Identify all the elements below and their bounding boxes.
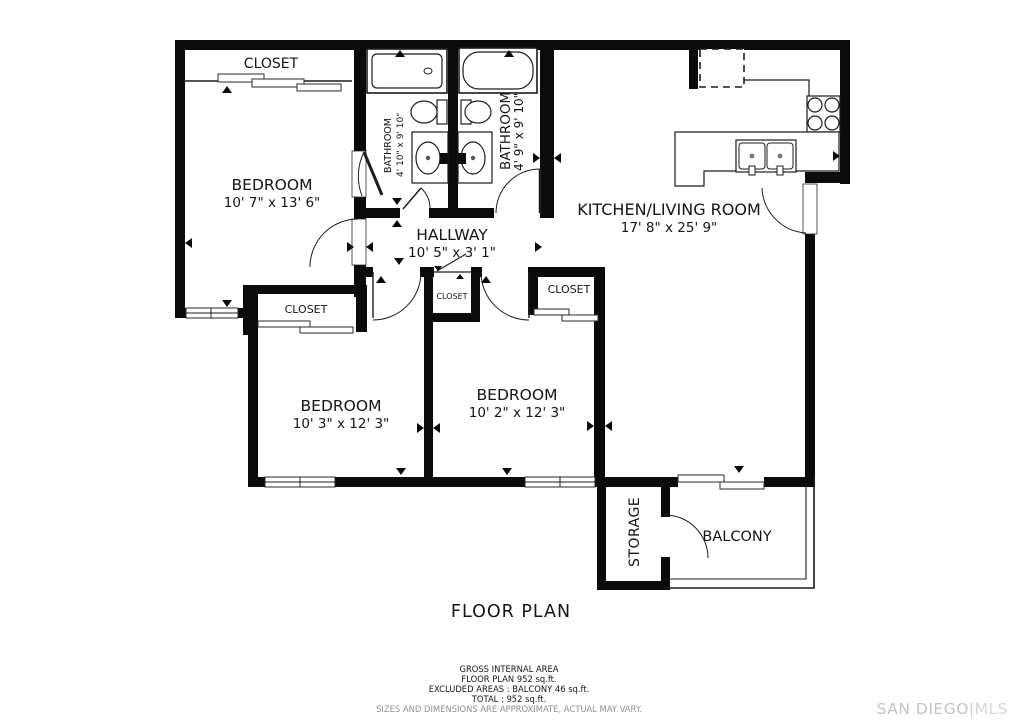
watermark-brand: SAN DIEGO — [877, 700, 969, 718]
label-bedroom2: BEDROOM — [301, 397, 382, 415]
refrigerator — [700, 49, 744, 87]
marker-up-closet1-slider — [222, 86, 232, 93]
door-jamb-bathroom1-bedroom — [352, 151, 366, 197]
dims-bathroom1: 4' 10" x 9' 10" — [396, 113, 406, 177]
marker-right-hall-end — [535, 242, 542, 252]
dims-kitchen-living: 17' 8" x 25' 9" — [621, 220, 718, 236]
door-arc-bathroom1-hall — [421, 188, 430, 209]
wall-kitchen-step — [805, 172, 850, 183]
label-bedroom1: BEDROOM — [232, 176, 313, 194]
stove — [807, 96, 840, 132]
footer-total-area: TOTAL : 952 sq.ft. — [471, 694, 546, 704]
marker-right-bed3-divider — [587, 421, 594, 431]
marker-left-hall-left-b — [366, 242, 373, 252]
door-arc-entry — [762, 188, 806, 233]
floor-plan-drawing: CLOSET BEDROOM 10' 7" x 13' 6" BATHROOM … — [0, 0, 1024, 724]
window-bedroom1 — [186, 308, 238, 318]
label-bathroom1: BATHROOM — [383, 118, 394, 173]
dims-bedroom2: 10' 3" x 12' 3" — [293, 416, 390, 432]
marker-left-bed23-divider — [433, 423, 440, 433]
wall-fridge-nook — [689, 40, 698, 89]
wall-bedroom2-left — [248, 285, 258, 487]
door-leaf-bathroom1-hall — [403, 188, 421, 209]
footer-gross-area: GROSS INTERNAL AREA — [459, 664, 558, 674]
toilet-bathroom1 — [411, 100, 447, 124]
wall-kitchen-right-upper — [840, 40, 850, 184]
marker-down-bath1-door — [392, 198, 402, 205]
label-balcony: BALCONY — [702, 529, 771, 545]
wall-hallway-bottom-d — [528, 267, 604, 277]
wall-storage-left — [597, 487, 606, 590]
wall-bedroom2-bedroom3-divider — [424, 320, 433, 487]
wall-bathroom-divider — [448, 40, 458, 210]
door-arc-bathroom2 — [496, 169, 540, 213]
watermark-suffix: MLS — [975, 700, 1008, 718]
wall-hallway-bottom-a — [354, 267, 373, 277]
watermark: SAN DIEGO|MLS — [877, 700, 1008, 718]
marker-down-bedroom2-door — [394, 258, 404, 265]
wall-closet-bedroom2-top — [243, 285, 367, 294]
sliding-door-closet-bedroom1 — [183, 74, 352, 91]
wall-bedroom1-bathroom1-upper — [354, 40, 366, 151]
dims-bedroom1: 10' 7" x 13' 6" — [224, 195, 321, 211]
wall-storage-bottom — [597, 581, 670, 590]
kitchen-sink — [736, 140, 796, 175]
floor-plan-page: CLOSET BEDROOM 10' 7" x 13' 6" BATHROOM … — [0, 0, 1024, 724]
dims-bedroom3: 10' 2" x 12' 3" — [469, 405, 566, 421]
marker-down-bedroom3-window — [502, 468, 512, 475]
door-arc-bedroom1 — [310, 219, 358, 267]
wall-closet-bedroom2-right — [356, 285, 367, 332]
label-closet-bedroom3: CLOSET — [548, 283, 591, 296]
shower — [367, 49, 447, 93]
marker-up-bedroom2-door — [376, 276, 386, 283]
label-closet-hallway: CLOSET — [436, 292, 467, 301]
marker-right-bath2-wall — [533, 153, 540, 163]
toilet-bathroom2 — [461, 100, 491, 124]
marker-left-bedroom1-wall — [185, 238, 192, 248]
wall-storage-right-upper — [661, 477, 670, 517]
label-storage: STORAGE — [627, 497, 643, 567]
wall-bathroom2-kitchen — [540, 40, 554, 218]
label-closet-bedroom2: CLOSET — [285, 303, 328, 316]
window-bedroom2 — [265, 477, 335, 487]
dims-bathroom2: 4' 9" x 9' 10" — [512, 93, 526, 171]
sliding-door-closet-bedroom3 — [534, 309, 598, 321]
sliding-door-balcony — [678, 475, 764, 489]
marker-left-bath2-wall — [554, 153, 561, 163]
label-bedroom3: BEDROOM — [477, 386, 558, 404]
sliding-door-closet-bedroom2 — [258, 321, 353, 333]
wall-bedroom3-kitchen-divider — [594, 267, 605, 487]
label-closet-bedroom1: CLOSET — [244, 56, 299, 72]
wall-kitchen-right-lower — [805, 234, 815, 487]
counter-upper — [744, 80, 809, 96]
label-kitchen-living: KITCHEN/LIVING ROOM — [577, 200, 761, 219]
marker-down-balcony-door — [734, 466, 744, 473]
marker-up-hall-closet — [456, 274, 464, 279]
marker-up-bath1-door — [392, 220, 402, 227]
page-title: FLOOR PLAN — [451, 602, 571, 622]
door-jamb-entry — [803, 184, 817, 234]
door-jamb-bedroom1 — [352, 219, 366, 265]
window-bedroom3 — [525, 477, 595, 487]
door-leaf-bathroom1-bedroom — [364, 152, 382, 195]
marker-down-bedroom2-window — [396, 468, 406, 475]
dims-hallway: 10' 5" x 3' 1" — [408, 245, 496, 261]
footer-floor-plan-area: FLOOR PLAN 952 sq.ft. — [461, 674, 556, 684]
wall-bathroom1-bottom-a — [360, 208, 400, 218]
footer-disclaimer: SIZES AND DIMENSIONS ARE APPROXIMATE, AC… — [376, 704, 642, 714]
marker-up-bedroom3-door — [481, 276, 491, 283]
fixtures — [367, 48, 840, 186]
footer-excluded-areas: EXCLUDED AREAS : BALCONY 46 sq.ft. — [429, 684, 590, 694]
marker-right-bed23-divider — [417, 423, 424, 433]
wall-bathroom2-bottom — [452, 208, 494, 218]
label-hallway: HALLWAY — [416, 226, 488, 244]
labels: CLOSET BEDROOM 10' 7" x 13' 6" BATHROOM … — [224, 56, 1008, 718]
marker-down-bedroom1-window — [222, 300, 232, 307]
bathtub — [459, 48, 537, 93]
marker-left-bed3-divider — [605, 421, 612, 431]
